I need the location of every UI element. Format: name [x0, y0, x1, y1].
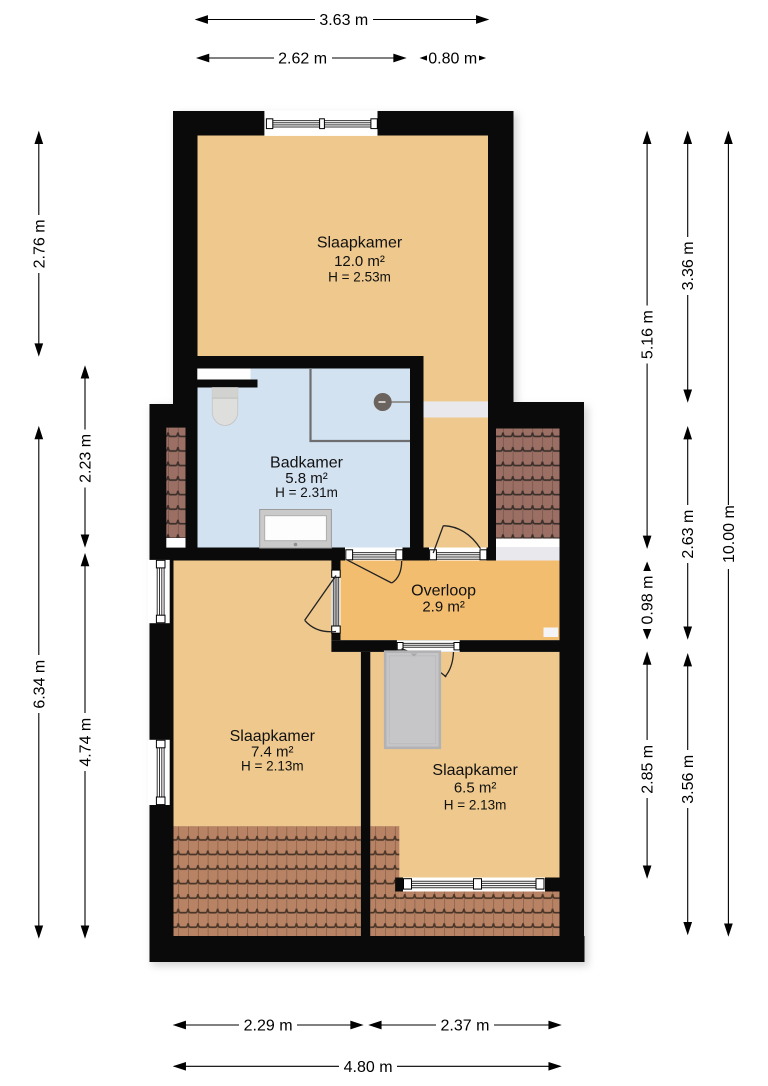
svg-text:6.34 m: 6.34 m [31, 660, 48, 709]
svg-text:2.85 m: 2.85 m [640, 745, 657, 794]
svg-text:2.37 m: 2.37 m [441, 1018, 490, 1035]
svg-text:4.80 m: 4.80 m [344, 1059, 393, 1076]
svg-text:3.36 m: 3.36 m [680, 241, 697, 290]
svg-text:H = 2.31m: H = 2.31m [275, 485, 338, 500]
svg-text:3.56 m: 3.56 m [680, 755, 697, 804]
svg-text:2.63 m: 2.63 m [680, 510, 697, 559]
svg-text:2.23 m: 2.23 m [78, 434, 95, 483]
svg-text:2.76 m: 2.76 m [31, 219, 48, 268]
svg-text:2.29 m: 2.29 m [244, 1018, 293, 1035]
svg-text:H = 2.13m: H = 2.13m [444, 798, 507, 813]
svg-text:H = 2.13m: H = 2.13m [241, 759, 304, 774]
svg-text:Slaapkamer: Slaapkamer [317, 235, 403, 252]
svg-text:H = 2.53m: H = 2.53m [328, 270, 391, 285]
svg-text:Overloop: Overloop [411, 583, 476, 600]
svg-text:3.63 m: 3.63 m [319, 12, 368, 29]
svg-text:4.74 m: 4.74 m [78, 718, 95, 767]
svg-text:10.00 m: 10.00 m [721, 505, 738, 563]
svg-text:0.98 m: 0.98 m [640, 576, 657, 625]
svg-text:Slaapkamer: Slaapkamer [230, 728, 316, 745]
svg-text:2.9 m²: 2.9 m² [422, 599, 465, 616]
svg-text:6.5 m²: 6.5 m² [454, 780, 497, 797]
svg-text:0.80 m: 0.80 m [428, 51, 477, 68]
svg-text:5.16 m: 5.16 m [640, 310, 657, 359]
svg-text:Slaapkamer: Slaapkamer [432, 762, 518, 779]
svg-text:2.62 m: 2.62 m [278, 51, 327, 68]
svg-text:Badkamer: Badkamer [270, 455, 344, 472]
svg-text:12.0 m²: 12.0 m² [334, 253, 385, 270]
